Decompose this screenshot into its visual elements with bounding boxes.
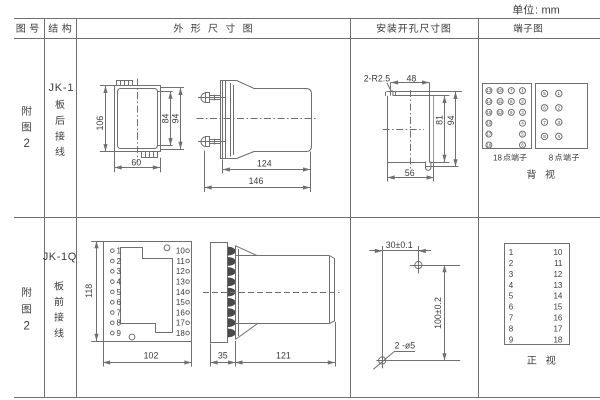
svg-text:15: 15 <box>176 298 185 307</box>
svg-text:16: 16 <box>176 308 185 317</box>
svg-text:4: 4 <box>558 134 561 139</box>
svg-text:1: 1 <box>509 248 514 257</box>
svg-text:146: 146 <box>249 176 264 186</box>
svg-text:7: 7 <box>117 308 122 317</box>
svg-text:9: 9 <box>117 329 122 338</box>
svg-text:JK-1Q: JK-1Q <box>43 251 77 263</box>
svg-text:5: 5 <box>117 288 122 297</box>
svg-text:6: 6 <box>543 105 546 110</box>
svg-text:2: 2 <box>558 105 561 110</box>
svg-text:17: 17 <box>176 319 185 328</box>
svg-text:8: 8 <box>549 153 554 162</box>
svg-text:48: 48 <box>407 74 417 84</box>
svg-text:100±0.2: 100±0.2 <box>433 297 443 329</box>
svg-text:30±0.1: 30±0.1 <box>386 240 413 250</box>
svg-text:4: 4 <box>117 278 122 287</box>
svg-text:18: 18 <box>493 153 502 162</box>
svg-text:6: 6 <box>117 298 122 307</box>
svg-text:60: 60 <box>131 158 141 168</box>
svg-text:118: 118 <box>84 284 94 298</box>
svg-text:10: 10 <box>498 88 503 93</box>
svg-text:12: 12 <box>553 270 562 279</box>
svg-text:7: 7 <box>509 314 514 323</box>
svg-text:11: 11 <box>498 99 503 104</box>
svg-text:124: 124 <box>257 158 272 168</box>
svg-text:8: 8 <box>543 134 546 139</box>
svg-text:11: 11 <box>554 259 563 268</box>
svg-text:3: 3 <box>509 270 514 279</box>
svg-text:1: 1 <box>117 247 122 256</box>
svg-text:7: 7 <box>543 120 546 125</box>
svg-text:35: 35 <box>218 350 228 360</box>
svg-text:3: 3 <box>558 120 561 125</box>
svg-text:16: 16 <box>487 121 492 126</box>
svg-text:17: 17 <box>553 324 562 333</box>
svg-text:8: 8 <box>509 324 514 333</box>
svg-text:2: 2 <box>509 259 514 268</box>
svg-text:1: 1 <box>558 91 561 96</box>
svg-text:3: 3 <box>117 267 122 276</box>
svg-text:2 -ø5: 2 -ø5 <box>395 341 416 351</box>
svg-text:mm: mm <box>542 4 560 16</box>
svg-text:9: 9 <box>509 335 514 344</box>
svg-text:18: 18 <box>176 329 185 338</box>
svg-text:94: 94 <box>446 115 456 125</box>
svg-text:13: 13 <box>487 88 492 93</box>
svg-text:13: 13 <box>176 278 185 287</box>
svg-text:15: 15 <box>553 303 562 312</box>
svg-text:18: 18 <box>553 335 562 344</box>
svg-text:2: 2 <box>23 321 29 333</box>
svg-text:102: 102 <box>144 350 159 360</box>
svg-text::: : <box>535 4 538 16</box>
svg-text:14: 14 <box>553 292 562 301</box>
svg-text:56: 56 <box>405 168 415 178</box>
svg-text:94: 94 <box>171 114 181 124</box>
svg-text:17: 17 <box>487 132 492 137</box>
svg-text:18: 18 <box>487 143 492 148</box>
svg-text:81: 81 <box>435 115 445 125</box>
svg-text:2: 2 <box>23 138 29 150</box>
svg-text:14: 14 <box>176 288 185 297</box>
svg-text:13: 13 <box>553 281 562 290</box>
svg-text:10: 10 <box>176 247 185 256</box>
svg-text:5: 5 <box>509 292 514 301</box>
svg-text:5: 5 <box>543 91 546 96</box>
svg-text:10: 10 <box>553 248 562 257</box>
svg-text:4: 4 <box>509 281 514 290</box>
svg-text:12: 12 <box>176 267 185 276</box>
svg-text:2: 2 <box>117 257 122 266</box>
svg-text:6: 6 <box>509 303 514 312</box>
svg-text:121: 121 <box>276 350 291 360</box>
svg-text:8: 8 <box>117 319 122 328</box>
svg-text:106: 106 <box>95 116 105 131</box>
svg-text:16: 16 <box>553 314 562 323</box>
svg-text:84: 84 <box>161 114 171 124</box>
svg-text:2-R2.5: 2-R2.5 <box>364 73 391 83</box>
svg-text:14: 14 <box>487 99 492 104</box>
svg-text:12: 12 <box>498 110 503 115</box>
svg-text:11: 11 <box>176 257 185 266</box>
svg-text:15: 15 <box>487 110 492 115</box>
svg-text:JK-1: JK-1 <box>48 82 74 94</box>
